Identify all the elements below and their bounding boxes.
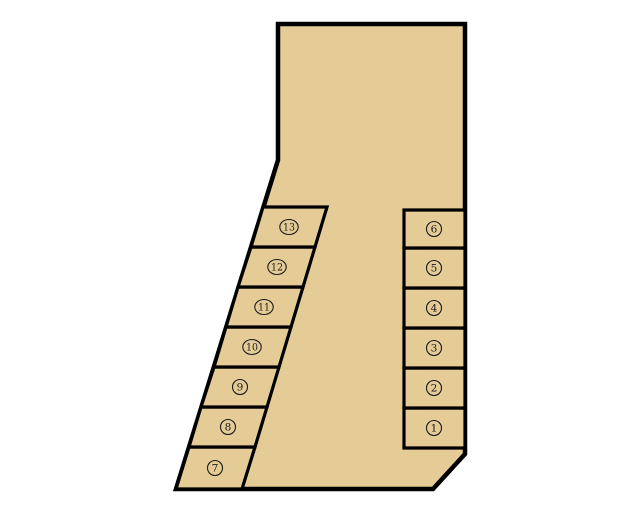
cell-number-label: 1 [431,423,438,435]
cell-number-label: 11 [258,302,270,314]
lot-svg: 12345678910111213 [0,0,640,512]
cell-number-label: 10 [246,342,258,354]
cell-number-label: 9 [237,382,244,394]
cell-number-label: 13 [283,222,295,234]
cell-number-label: 12 [271,262,283,274]
cell-number-label: 7 [212,463,219,475]
cell-number-label: 4 [431,303,438,315]
diagram-canvas: 12345678910111213 [0,0,640,512]
cell-number-label: 6 [431,224,438,236]
cell-number-label: 8 [225,422,232,434]
cell-number-label: 2 [431,383,438,395]
cell-number-label: 3 [431,343,438,355]
cell-number-label: 5 [431,263,438,275]
